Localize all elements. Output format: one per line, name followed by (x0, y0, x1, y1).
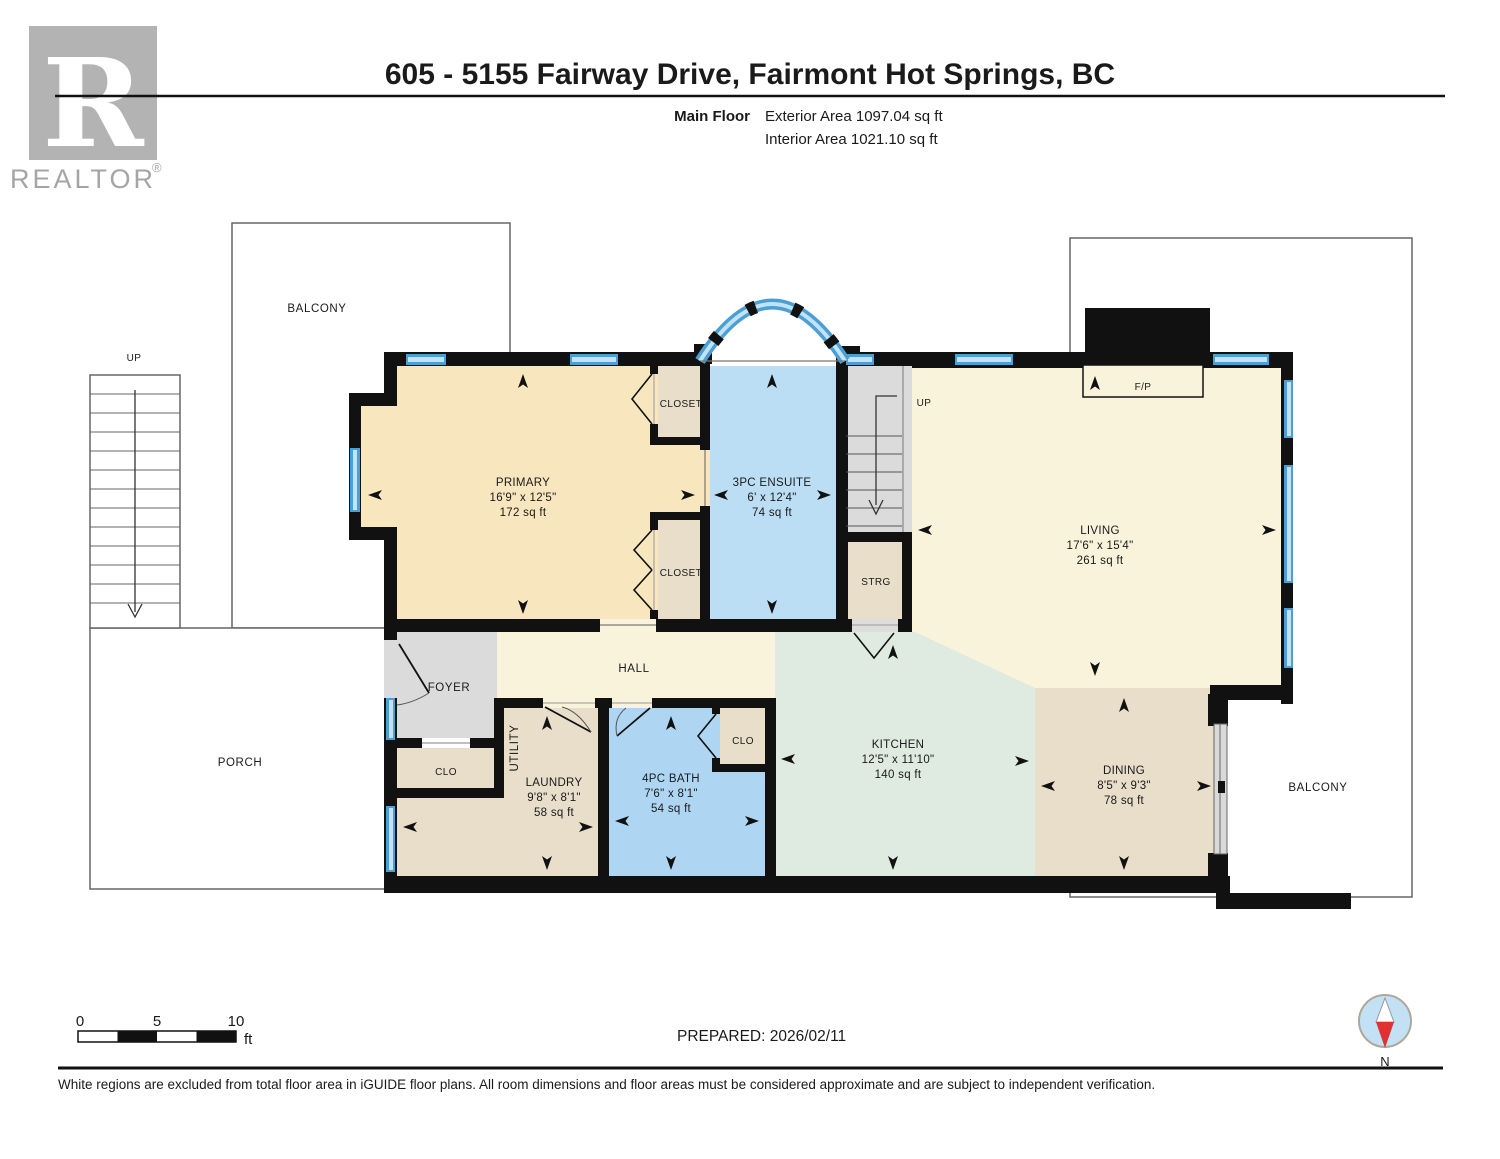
wall (384, 352, 397, 399)
balcony-right-label: BALCONY (1288, 782, 1347, 794)
primary-area: 172 sq ft (500, 507, 547, 519)
interior-area: Interior Area 1021.10 sq ft (765, 131, 938, 148)
ensuite-area: 74 sq ft (752, 507, 793, 519)
living-name: LIVING (1080, 525, 1120, 537)
strg-label: STRG (861, 577, 890, 588)
closet-top-label: CLOSET (660, 399, 702, 410)
utility-label: UTILITY (509, 724, 521, 771)
wall (470, 738, 504, 748)
porch-label: PORCH (218, 757, 263, 769)
exterior-area: Exterior Area 1097.04 sq ft (765, 108, 943, 125)
wall (1208, 853, 1228, 885)
dining-area: 78 sq ft (1104, 795, 1145, 807)
dining-dims: 8'5" x 9'3" (1097, 780, 1151, 792)
laundry-area: 58 sq ft (534, 807, 575, 819)
bath-area: 54 sq ft (651, 803, 692, 815)
wall (598, 698, 609, 876)
hall-label: HALL (618, 663, 649, 675)
compass-icon: N (1359, 995, 1411, 1069)
wall (765, 698, 776, 876)
page-title: 605 - 5155 Fairway Drive, Fairmont Hot S… (385, 58, 1115, 91)
wall (1208, 694, 1228, 726)
wall (902, 532, 912, 632)
kitchen-dims: 12'5" x 11'10" (862, 754, 935, 766)
bath-dims: 7'6" x 8'1" (644, 788, 698, 800)
laundry-name: LAUNDRY (526, 777, 583, 789)
laundry-dims: 9'8" x 8'1" (527, 792, 581, 804)
scale-tick-5: 5 (153, 1013, 161, 1030)
wall (712, 764, 768, 772)
wall (384, 527, 397, 632)
wall (700, 619, 845, 632)
wall (384, 619, 712, 632)
up-interior-label: UP (917, 398, 932, 409)
disclaimer-text: White regions are excluded from total fl… (58, 1077, 1155, 1092)
scale-bar: 0 5 10 ft (76, 1013, 253, 1048)
header: R REALTOR ® 605 - 5155 Fairway Drive, Fa… (10, 26, 1445, 194)
prepared-date: PREPARED: 2026/02/11 (677, 1028, 846, 1045)
wall (1216, 893, 1351, 909)
bay-arch-window (700, 304, 845, 361)
ensuite-dims: 6' x 12'4" (747, 492, 796, 504)
sliding-door-icon (1214, 724, 1227, 854)
fireplace-block (1085, 308, 1210, 365)
exterior-stairs (90, 375, 180, 628)
dining-name: DINING (1103, 765, 1145, 777)
clo-foyer-label: CLO (435, 767, 457, 778)
wall (836, 352, 848, 632)
primary-name: PRIMARY (496, 477, 550, 489)
ensuite-name: 3PC ENSUITE (733, 477, 812, 489)
bath-name: 4PC BATH (642, 773, 700, 785)
scale-unit: ft (244, 1031, 253, 1048)
realtor-logo-text: REALTOR (10, 164, 156, 194)
wall (845, 532, 908, 542)
wall (384, 876, 1230, 893)
living-area: 261 sq ft (1077, 555, 1124, 567)
wall (384, 788, 504, 798)
up-exterior-label: UP (127, 353, 142, 364)
scale-tick-0: 0 (76, 1013, 84, 1030)
footer: 0 5 10 ft PREPARED: 2026/02/11 N White r… (58, 995, 1443, 1092)
floor-plan-page: R REALTOR ® 605 - 5155 Fairway Drive, Fa… (0, 0, 1500, 1159)
primary-dims: 16'9" x 12'5" (490, 492, 557, 504)
floor-label: Main Floor (674, 108, 750, 125)
clo-bath-label: CLO (732, 736, 754, 747)
kitchen-name: KITCHEN (872, 739, 925, 751)
living-dims: 17'6" x 15'4" (1067, 540, 1134, 552)
wall (650, 512, 705, 520)
closet-bottom-label: CLOSET (660, 568, 702, 579)
scale-tick-10: 10 (228, 1013, 245, 1030)
floor-plan-svg: R REALTOR ® 605 - 5155 Fairway Drive, Fa… (0, 0, 1500, 1159)
balcony-top-label: BALCONY (287, 303, 346, 315)
wall (650, 437, 705, 445)
foyer-label: FOYER (428, 682, 471, 694)
realtor-logo-letter: R (42, 31, 145, 175)
realtor-logo-reg: ® (152, 160, 162, 175)
kitchen-area: 140 sq ft (875, 769, 922, 781)
fireplace-label: F/P (1135, 382, 1152, 393)
